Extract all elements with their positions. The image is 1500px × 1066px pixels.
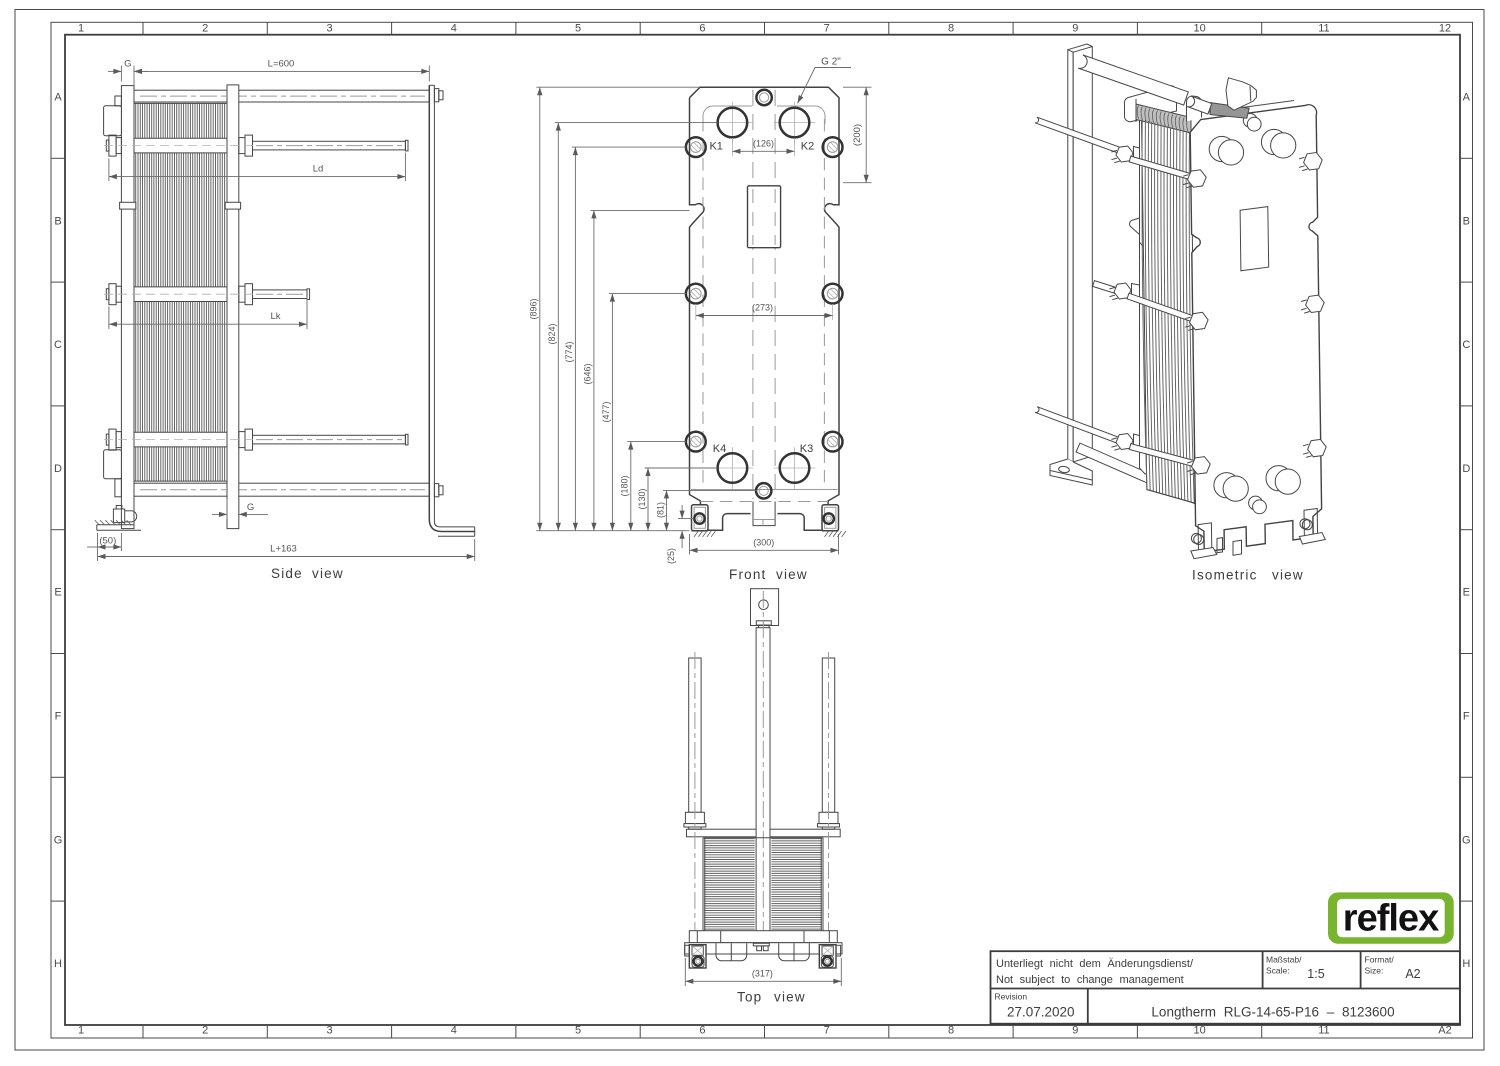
svg-text:Unterliegt nicht dem Änderungs: Unterliegt nicht dem Änderungsdienst/ (996, 958, 1194, 970)
svg-text:(180): (180) (620, 475, 630, 496)
svg-text:F: F (1463, 711, 1470, 723)
svg-text:K4: K4 (713, 443, 726, 455)
svg-text:H: H (1462, 958, 1470, 970)
svg-text:G: G (54, 834, 63, 846)
svg-text:(200): (200) (852, 124, 863, 146)
svg-text:view: view (774, 990, 806, 1005)
svg-text:view: view (776, 567, 808, 582)
svg-text:8: 8 (948, 23, 954, 35)
svg-text:Not subject to change manageme: Not subject to change management (996, 974, 1184, 986)
svg-text:Revision: Revision (995, 992, 1028, 1002)
svg-text:5: 5 (575, 23, 581, 35)
svg-text:4: 4 (451, 1025, 457, 1037)
svg-text:A: A (54, 92, 62, 104)
svg-text:L=600: L=600 (268, 59, 295, 70)
svg-text:11: 11 (1318, 1025, 1329, 1037)
svg-text:view: view (1272, 568, 1304, 583)
svg-text:G 2": G 2" (821, 57, 841, 68)
svg-text:8: 8 (948, 1025, 954, 1037)
svg-text:2: 2 (202, 23, 208, 35)
svg-text:(130): (130) (637, 488, 647, 509)
svg-text:3: 3 (326, 23, 332, 35)
svg-text:(896): (896) (529, 298, 539, 319)
svg-text:6: 6 (699, 1025, 705, 1037)
svg-text:1: 1 (78, 23, 84, 35)
svg-text:G: G (124, 59, 131, 70)
svg-text:7: 7 (824, 1025, 830, 1037)
svg-text:(646): (646) (583, 363, 593, 384)
svg-text:5: 5 (575, 1025, 581, 1037)
svg-text:C: C (54, 339, 62, 351)
svg-text:Format/: Format/ (1365, 955, 1395, 965)
svg-text:(273): (273) (752, 303, 773, 313)
svg-text:Lk: Lk (270, 311, 280, 322)
svg-text:Side: Side (271, 566, 303, 581)
svg-text:D: D (54, 463, 62, 475)
svg-text:view: view (312, 566, 344, 581)
svg-text:B: B (54, 215, 61, 227)
svg-text:D: D (1462, 463, 1470, 475)
svg-text:C: C (1462, 339, 1470, 351)
svg-text:B: B (1463, 215, 1470, 227)
svg-text:10: 10 (1193, 23, 1205, 35)
svg-text:Top: Top (737, 990, 762, 1005)
svg-text:(300): (300) (753, 538, 774, 548)
svg-text:Ld: Ld (313, 164, 324, 175)
svg-text:Maßstab/: Maßstab/ (1266, 955, 1302, 965)
svg-text:L+163: L+163 (270, 544, 297, 555)
svg-text:K1: K1 (709, 140, 722, 152)
svg-text:(477): (477) (601, 401, 611, 422)
svg-text:7: 7 (824, 23, 830, 35)
svg-text:Isometric: Isometric (1192, 568, 1258, 583)
svg-text:9: 9 (1072, 1025, 1078, 1037)
svg-text:(824): (824) (547, 323, 557, 344)
svg-text:(126): (126) (753, 139, 774, 149)
svg-text:A2: A2 (1405, 967, 1420, 981)
svg-text:K2: K2 (801, 140, 814, 152)
svg-text:F: F (55, 711, 62, 723)
svg-text:3: 3 (326, 1025, 332, 1037)
svg-text:6: 6 (699, 23, 705, 35)
svg-text:11: 11 (1318, 23, 1329, 35)
svg-text:1:5: 1:5 (1307, 967, 1324, 981)
svg-text:Longtherm RLG-14-65-P16 – 8123: Longtherm RLG-14-65-P16 – 8123600 (1151, 1005, 1394, 1020)
svg-text:A2: A2 (1438, 1025, 1451, 1037)
svg-text:(774): (774) (564, 341, 574, 362)
svg-text:27.07.2020: 27.07.2020 (1007, 1005, 1075, 1020)
svg-text:reflex: reflex (1343, 898, 1439, 940)
svg-text:4: 4 (451, 23, 457, 35)
svg-text:2: 2 (202, 1025, 208, 1037)
svg-text:(81): (81) (655, 502, 665, 518)
svg-text:1: 1 (78, 1025, 84, 1037)
svg-text:G: G (1462, 834, 1471, 846)
svg-text:Scale:: Scale: (1266, 966, 1290, 976)
svg-text:Size:: Size: (1365, 966, 1384, 976)
svg-text:10: 10 (1193, 1025, 1205, 1037)
svg-text:(25): (25) (666, 548, 676, 564)
svg-text:K3: K3 (800, 443, 813, 455)
svg-text:9: 9 (1072, 23, 1078, 35)
svg-text:A: A (1463, 92, 1471, 104)
svg-text:(317): (317) (752, 968, 773, 978)
svg-text:E: E (1463, 587, 1470, 599)
svg-text:12: 12 (1439, 23, 1451, 35)
svg-text:E: E (54, 587, 61, 599)
svg-text:G: G (247, 502, 254, 513)
svg-text:H: H (54, 958, 62, 970)
svg-text:Front: Front (729, 567, 767, 582)
